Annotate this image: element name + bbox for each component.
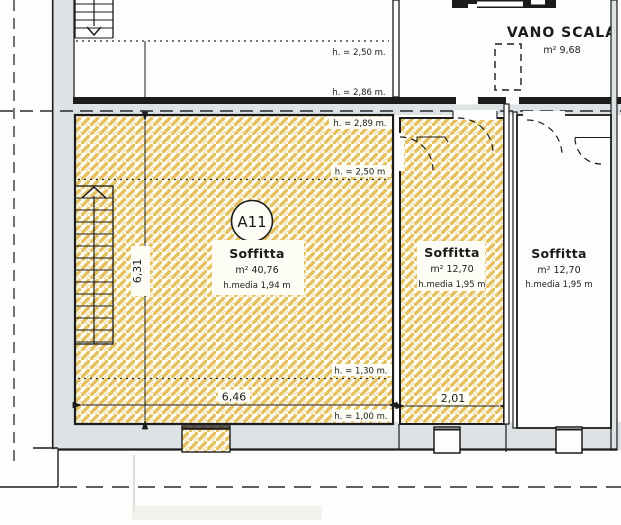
floor-plan-canvas: h. = 2,50 m. h. = 2,86 m. VANO SCALA m² … bbox=[0, 0, 621, 525]
room-right: Soffitta m² 12,70 h.media 1,95 m bbox=[517, 111, 611, 428]
right-outer-wall bbox=[611, 0, 617, 450]
label-right-name: Soffitta bbox=[531, 246, 587, 261]
left-wall-fill bbox=[52, 0, 75, 449]
upper-room-right-wall bbox=[393, 0, 399, 97]
door-gap-2 bbox=[506, 97, 519, 105]
label-center-name: Soffitta bbox=[424, 245, 480, 260]
label-vano-scala-title: VANO SCALA bbox=[507, 25, 617, 41]
pillar bbox=[434, 427, 460, 453]
label-a11-area: m² 40,76 bbox=[235, 265, 278, 276]
room-a11: h. = 2,89 m. h. = 2,50 m 6,31 A11 Soffit… bbox=[75, 115, 393, 424]
label-a11-height-floor: h. = 1,00 m. bbox=[334, 412, 387, 422]
label-right-area: m² 12,70 bbox=[537, 265, 580, 276]
label-height-upper-1: h. = 2,50 m. bbox=[332, 48, 385, 58]
label-a11-badge: A11 bbox=[237, 213, 266, 231]
door-opening-top bbox=[523, 111, 565, 120]
upper-section-wall bbox=[73, 97, 621, 104]
scan-smudge bbox=[132, 506, 322, 520]
chimney-hatched bbox=[182, 426, 230, 452]
room-center: Soffitta m² 12,70 h.media 1,95 m 2,01 bbox=[395, 104, 517, 428]
label-vano-scala-area: m² 9,68 bbox=[543, 45, 580, 56]
vano-window-opening bbox=[477, 2, 523, 7]
label-a11-height-top: h. = 2,89 m. bbox=[333, 119, 386, 129]
label-center-avg-height: h.media 1,95 m bbox=[418, 280, 485, 290]
label-a11-height-low: h. = 1,30 m. bbox=[334, 367, 387, 377]
pillar bbox=[556, 427, 582, 453]
label-a11-avg-height: h.media 1,94 m bbox=[223, 281, 290, 291]
label-center-width: 2,01 bbox=[441, 392, 466, 405]
vano-wall-notch-left bbox=[468, 4, 477, 8]
party-wall-left bbox=[504, 104, 509, 424]
label-height-upper-2: h. = 2,86 m. bbox=[332, 88, 385, 98]
vano-wall-notch-right bbox=[531, 0, 545, 5]
label-a11-name: Soffitta bbox=[229, 246, 285, 261]
label-center-area: m² 12,70 bbox=[430, 264, 473, 275]
door-gap-1 bbox=[456, 97, 478, 105]
label-a11-width: 6,46 bbox=[222, 391, 247, 404]
label-right-avg-height: h.media 1,95 m bbox=[525, 280, 592, 290]
label-a11-depth: 6,31 bbox=[131, 259, 144, 284]
label-a11-height-mid: h. = 2,50 m bbox=[335, 168, 386, 178]
door-opening-left bbox=[395, 133, 404, 171]
floor-plan-page: h. = 2,50 m. h. = 2,86 m. VANO SCALA m² … bbox=[0, 0, 621, 525]
